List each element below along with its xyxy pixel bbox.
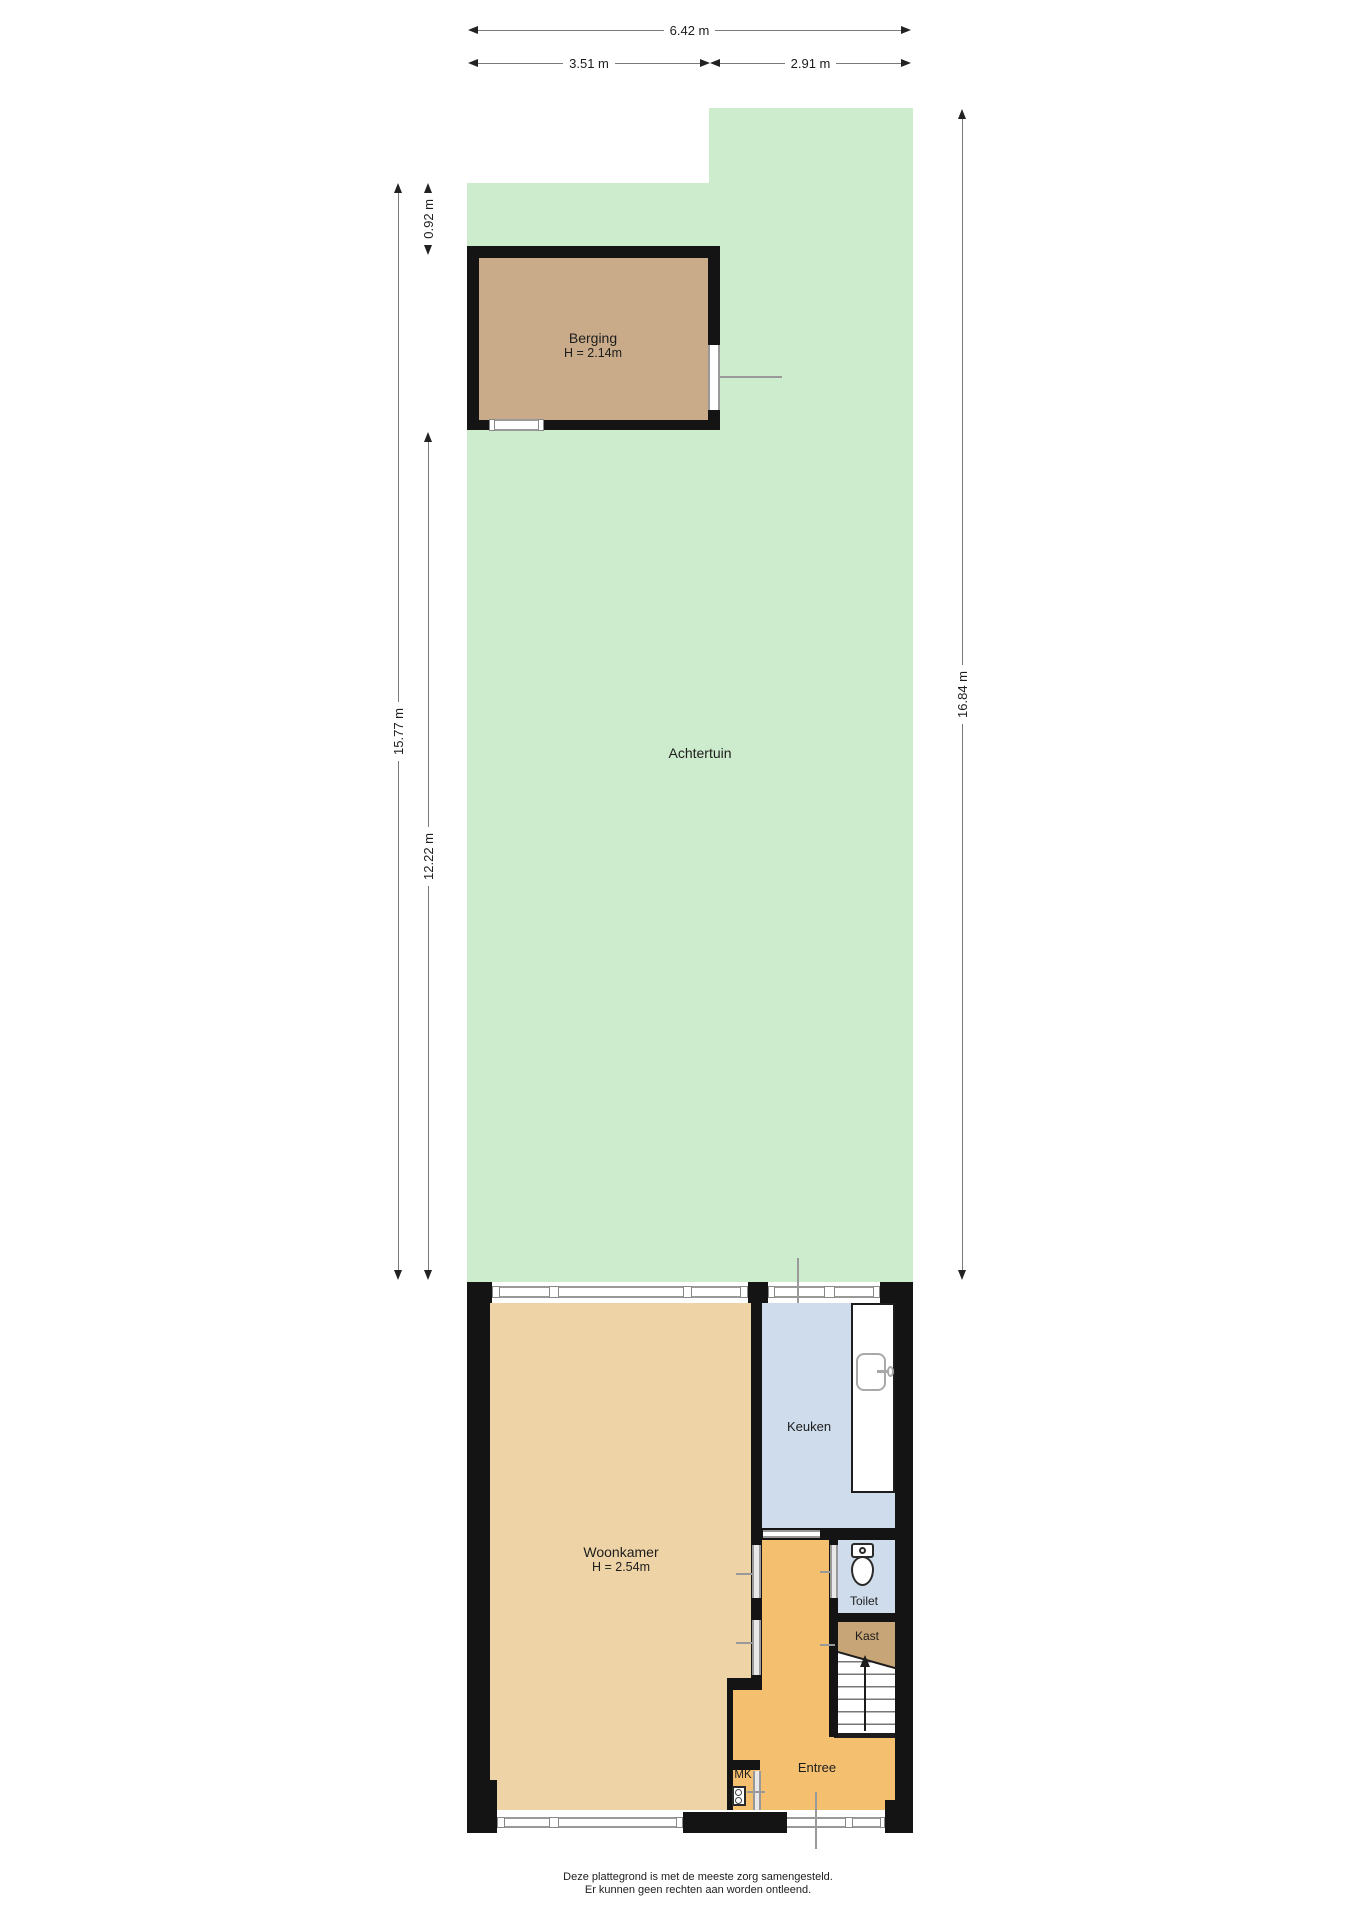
stairs-direction-line <box>864 1665 866 1731</box>
front-door-line <box>815 1792 817 1849</box>
arrow-right-icon <box>700 59 710 67</box>
top-wall-mid-pier <box>748 1282 768 1303</box>
kitchen-label: Keuken <box>787 1419 831 1434</box>
arrow-right-icon <box>901 59 911 67</box>
bottom-wall-center-pier <box>683 1812 787 1833</box>
shed-door <box>708 345 720 410</box>
living-room-rear-window <box>492 1286 748 1298</box>
bottom-wall-left-corner <box>467 1780 497 1833</box>
dimension-shed-gap-label: 0.92 m <box>421 193 436 245</box>
arrow-right-icon <box>901 26 911 34</box>
arrow-down-icon <box>394 1270 402 1280</box>
living-room-name: Woonkamer <box>583 1544 658 1560</box>
meter-dial-icon <box>735 1797 742 1804</box>
dimension-shed-gap: 0.92 m <box>420 183 436 246</box>
dimension-left-full: 15.77 m <box>390 183 406 1280</box>
arrow-up-icon <box>958 109 966 119</box>
disclaimer-line-1: Deze plattegrond is met de meeste zorg s… <box>563 1871 833 1884</box>
living-kitchen-wall <box>751 1303 762 1528</box>
stairs-up-arrow-icon <box>860 1655 870 1667</box>
dimension-top-right-label: 2.91 m <box>785 56 837 71</box>
shed-height: H = 2.14m <box>564 346 622 360</box>
dimension-top-total-label: 6.42 m <box>664 23 716 38</box>
shed-window <box>490 419 543 431</box>
toilet-door-swing <box>820 1571 830 1573</box>
living-room-label: Woonkamer H = 2.54m <box>583 1544 658 1574</box>
shed-label: Berging H = 2.14m <box>564 330 622 360</box>
arrow-up-icon <box>394 183 402 193</box>
faucet-knob-icon <box>887 1366 894 1377</box>
staircase-bottom-edge <box>834 1733 895 1738</box>
garden-area-right <box>709 108 913 1282</box>
meter-closet-label: MK <box>734 1769 751 1781</box>
arrow-down-icon <box>424 245 432 255</box>
floor-plan: Achtertuin 6.42 m 3.51 m 2.91 m 15.77 m … <box>0 0 1358 1920</box>
shed-door-swing-line <box>720 376 782 378</box>
entry-label: Entree <box>798 1760 836 1775</box>
dimension-top-right: 2.91 m <box>710 56 911 70</box>
living-hall-door-lower-swing <box>736 1642 752 1644</box>
kitchen-hall-door-sill <box>763 1530 820 1538</box>
dimension-left-full-label: 15.77 m <box>391 702 406 761</box>
living-room-height: H = 2.54m <box>583 1560 658 1574</box>
dimension-top-left-label: 3.51 m <box>563 56 615 71</box>
arrow-down-icon <box>424 1270 432 1280</box>
shed-name: Berging <box>564 330 622 346</box>
toilet-bottom-wall <box>829 1613 895 1622</box>
toilet-label: Toilet <box>850 1594 878 1608</box>
arrow-left-icon <box>468 59 478 67</box>
arrow-left-icon <box>468 26 478 34</box>
closet-door-swing <box>820 1644 835 1646</box>
meter-dial-icon <box>735 1789 742 1796</box>
arrow-left-icon <box>710 59 720 67</box>
meter-closet-door-swing <box>747 1791 765 1793</box>
garden-label: Achtertuin <box>668 745 731 761</box>
arrow-up-icon <box>424 183 432 193</box>
entry-front-door-sill <box>787 1817 885 1828</box>
living-hall-door-lower <box>752 1620 761 1675</box>
dimension-right-garden: 16.84 m <box>954 109 970 1280</box>
living-entry-step-wall <box>727 1678 762 1690</box>
arrow-up-icon <box>424 432 432 442</box>
toilet-button-icon <box>859 1547 866 1554</box>
dimension-top-total: 6.42 m <box>468 23 911 37</box>
closet-label: Kast <box>855 1629 879 1643</box>
house-right-wall <box>895 1282 913 1833</box>
dimension-top-left: 3.51 m <box>468 56 710 70</box>
toilet-door <box>830 1545 838 1598</box>
dimension-right-garden-label: 16.84 m <box>955 665 970 724</box>
kitchen-rear-window <box>768 1286 880 1298</box>
house-left-wall <box>467 1282 490 1833</box>
living-hall-door-upper <box>752 1545 761 1598</box>
disclaimer-text: Deze plattegrond is met de meeste zorg s… <box>563 1871 833 1897</box>
disclaimer-line-2: Er kunnen geen rechten aan worden ontlee… <box>563 1884 833 1897</box>
living-room-front-window <box>497 1817 683 1828</box>
living-hall-door-upper-swing <box>736 1573 752 1575</box>
dimension-left-garden: 12.22 m <box>420 432 436 1280</box>
bottom-wall-right-corner <box>885 1800 913 1833</box>
arrow-down-icon <box>958 1270 966 1280</box>
kitchen-counter <box>851 1303 895 1493</box>
dimension-left-garden-label: 12.22 m <box>421 827 436 886</box>
